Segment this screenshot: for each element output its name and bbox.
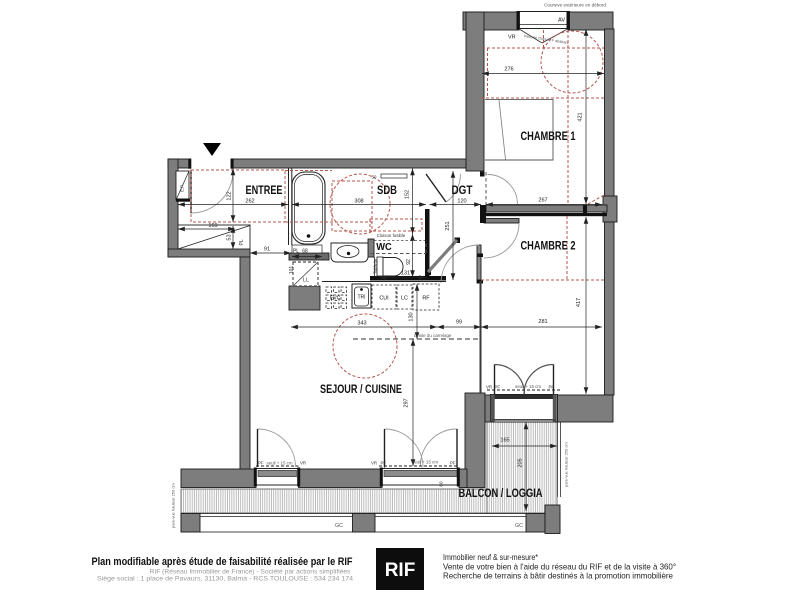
- svg-text:Siège social : 1 place de Pava: Siège social : 1 place de Pavaurs, 31130…: [97, 576, 353, 583]
- svg-text:PF: PF: [381, 461, 387, 466]
- svg-text:seuil + 15 cm: seuil + 15 cm: [267, 461, 293, 466]
- svg-text:343: 343: [357, 321, 366, 327]
- svg-text:VR: VR: [371, 461, 377, 466]
- svg-text:101: 101: [289, 266, 295, 275]
- svg-text:120: 120: [457, 199, 466, 205]
- svg-text:VR: VR: [508, 35, 516, 41]
- svg-text:EVC: EVC: [330, 296, 341, 302]
- svg-text:122: 122: [227, 191, 233, 200]
- svg-text:VR: VR: [300, 461, 306, 466]
- svg-text:E.P.: E.P.: [180, 184, 185, 192]
- svg-text:Vente de votre bien à l'aide d: Vente de votre bien à l'aide du réseau d…: [443, 563, 676, 572]
- svg-text:Tablette: Tablette: [373, 258, 378, 274]
- svg-text:92: 92: [406, 259, 412, 265]
- svg-text:RIF (Réseau Immobilier de Fran: RIF (Réseau Immobilier de France) - Soci…: [150, 569, 352, 576]
- svg-text:Limite du carrelage: Limite du carrelage: [414, 333, 452, 338]
- svg-text:262: 262: [245, 199, 254, 205]
- svg-text:Immobilier neuf & sur-mesure*: Immobilier neuf & sur-mesure*: [443, 553, 539, 562]
- svg-text:68: 68: [302, 249, 308, 255]
- svg-text:ENTREE: ENTREE: [246, 185, 283, 197]
- svg-text:RF: RF: [422, 296, 430, 302]
- svg-text:pare-vue hauteur 250 cm: pare-vue hauteur 250 cm: [171, 483, 176, 528]
- svg-text:TRI: TRI: [357, 295, 365, 301]
- svg-text:CHAMBRE 1: CHAMBRE 1: [521, 129, 576, 143]
- svg-text:seuil + 15 cm: seuil + 15 cm: [515, 384, 541, 389]
- svg-text:Recherche de terrains à bâtir: Recherche de terrains à bâtir destinés à…: [443, 572, 673, 581]
- svg-text:53: 53: [227, 234, 233, 240]
- svg-text:308: 308: [354, 199, 363, 205]
- svg-text:276: 276: [504, 67, 513, 73]
- svg-text:Plan modifiable après étude de: Plan modifiable après étude de faisabili…: [92, 556, 353, 568]
- svg-text:PF: PF: [258, 461, 264, 466]
- svg-text:80: 80: [439, 481, 444, 487]
- svg-text:421: 421: [578, 112, 584, 121]
- svg-text:AV: AV: [558, 18, 565, 24]
- svg-text:152: 152: [405, 190, 411, 199]
- svg-text:GC: GC: [335, 523, 343, 529]
- svg-text:PL: PL: [239, 239, 245, 245]
- svg-text:130: 130: [409, 312, 415, 321]
- svg-text:PF: PF: [495, 385, 501, 390]
- svg-text:PL: PL: [293, 249, 299, 255]
- svg-text:DGT: DGT: [452, 185, 473, 197]
- svg-text:251: 251: [445, 221, 451, 230]
- svg-text:pare-vue hauteur 250 cm: pare-vue hauteur 250 cm: [564, 442, 569, 487]
- svg-text:CHAMBRE 2: CHAMBRE 2: [521, 239, 576, 253]
- svg-text:267: 267: [538, 198, 547, 204]
- svg-text:VR: VR: [486, 385, 492, 390]
- svg-text:SEJOUR / CUISINE: SEJOUR / CUISINE: [320, 384, 402, 396]
- svg-text:417: 417: [576, 298, 582, 307]
- svg-text:205: 205: [518, 458, 524, 467]
- svg-text:131: 131: [401, 271, 410, 277]
- svg-text:BALCON / LOGGIA: BALCON / LOGGIA: [459, 488, 543, 500]
- svg-text:RIF: RIF: [385, 560, 416, 581]
- svg-text:50: 50: [372, 175, 377, 180]
- svg-text:Coursive extérieure en débord: Coursive extérieure en débord: [544, 3, 606, 8]
- svg-text:169: 169: [208, 223, 217, 229]
- svg-text:PF: PF: [549, 385, 555, 390]
- svg-text:seuil + 15 cm: seuil + 15 cm: [412, 460, 438, 465]
- svg-text:165: 165: [500, 438, 509, 444]
- svg-text:LL: LL: [303, 278, 309, 284]
- svg-text:281: 281: [538, 319, 547, 325]
- svg-text:WC: WC: [376, 241, 392, 253]
- svg-text:297: 297: [404, 398, 410, 407]
- svg-text:Cloison fusible: Cloison fusible: [377, 233, 406, 238]
- svg-text:91: 91: [264, 247, 270, 253]
- svg-text:GC: GC: [515, 523, 523, 529]
- svg-text:LC: LC: [401, 296, 408, 302]
- svg-text:CUI: CUI: [379, 296, 388, 302]
- svg-text:99: 99: [456, 320, 462, 326]
- svg-text:PF: PF: [450, 461, 456, 466]
- svg-text:SDB: SDB: [377, 185, 397, 197]
